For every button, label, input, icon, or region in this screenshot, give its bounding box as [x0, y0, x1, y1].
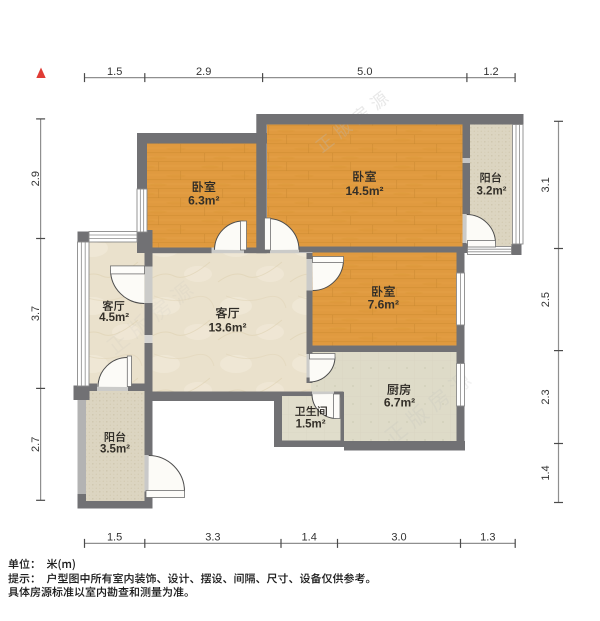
- svg-text:3.2m²: 3.2m²: [476, 185, 506, 197]
- svg-text:1.2: 1.2: [483, 66, 498, 78]
- svg-text:2.9: 2.9: [30, 171, 42, 186]
- svg-text:14.5m²: 14.5m²: [345, 184, 383, 198]
- svg-text:1.4: 1.4: [540, 465, 552, 480]
- svg-text:3.7: 3.7: [30, 306, 42, 321]
- svg-text:3.5m²: 3.5m²: [100, 444, 130, 456]
- svg-text:1.5: 1.5: [107, 66, 122, 78]
- svg-text:1.3: 1.3: [480, 532, 495, 544]
- svg-text:2.9: 2.9: [196, 66, 211, 78]
- svg-text:6.3m²: 6.3m²: [188, 193, 219, 207]
- svg-text:6.7m²: 6.7m²: [384, 396, 415, 410]
- svg-text:5.0: 5.0: [357, 66, 372, 78]
- svg-text:2.7: 2.7: [30, 437, 42, 452]
- svg-text:1.4: 1.4: [302, 532, 317, 544]
- svg-text:2.5: 2.5: [540, 292, 552, 307]
- svg-text:3.0: 3.0: [391, 532, 406, 544]
- svg-text:1.5m²: 1.5m²: [296, 419, 326, 431]
- svg-text:1.5: 1.5: [107, 532, 122, 544]
- svg-text:4.5m²: 4.5m²: [99, 312, 129, 324]
- svg-text:3.3: 3.3: [205, 532, 220, 544]
- svg-text:3.1: 3.1: [540, 177, 552, 192]
- svg-text:2.3: 2.3: [540, 389, 552, 404]
- svg-text:13.6m²: 13.6m²: [208, 321, 246, 335]
- svg-text:7.6m²: 7.6m²: [368, 298, 399, 312]
